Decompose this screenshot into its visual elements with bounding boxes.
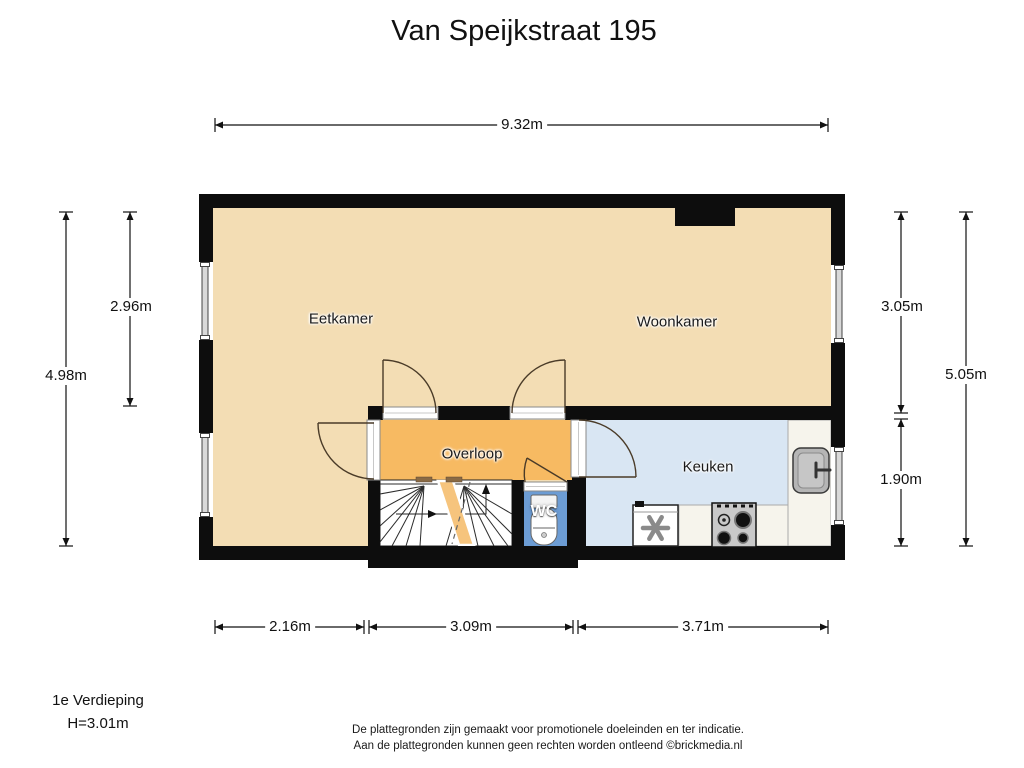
room-label-keuken: Keuken [683, 459, 734, 476]
window-left-upper [199, 262, 213, 340]
wall-bottom-protrusion [368, 546, 578, 568]
window-right-lower [831, 447, 845, 525]
ceiling-height: H=3.01m [42, 712, 154, 735]
sink-icon [793, 448, 830, 493]
freezer-icon [633, 501, 678, 546]
dim-bottom-left: 2.16m [265, 618, 315, 636]
room-label-overloop: Overloop [442, 446, 503, 463]
staircase [380, 477, 512, 546]
room-label-wc: WC [531, 503, 558, 521]
disclaimer-line-1: De plattegronden zijn gemaakt voor promo… [352, 722, 744, 738]
room-label-woonkamer: Woonkamer [637, 314, 718, 331]
wall-notch [675, 208, 735, 226]
floor-note: 1e Verdieping H=3.01m [42, 689, 154, 735]
stove-icon [712, 503, 756, 547]
dim-right-outer: 5.05m [941, 366, 991, 384]
disclaimer: De plattegronden zijn gemaakt voor promo… [352, 722, 744, 754]
window-right-upper [831, 265, 845, 343]
window-left-lower [199, 433, 213, 517]
dim-bottom-right: 3.71m [678, 618, 728, 636]
dim-bottom-middle: 3.09m [446, 618, 496, 636]
page-title: Van Speijkstraat 195 [391, 15, 656, 48]
dim-right-inner-bottom: 1.90m [876, 471, 926, 489]
dim-left-inner: 2.96m [106, 298, 156, 316]
dim-top-width: 9.32m [497, 116, 547, 134]
floor-label: 1e Verdieping [42, 689, 154, 712]
dim-left-outer: 4.98m [41, 367, 91, 385]
room-label-eetkamer: Eetkamer [309, 311, 373, 328]
floorplan-page: Van Speijkstraat 195 Eetkamer Woonkamer … [0, 0, 1024, 768]
disclaimer-line-2: Aan de plattegronden kunnen geen rechten… [352, 738, 744, 754]
dim-right-inner-top: 3.05m [877, 298, 927, 316]
